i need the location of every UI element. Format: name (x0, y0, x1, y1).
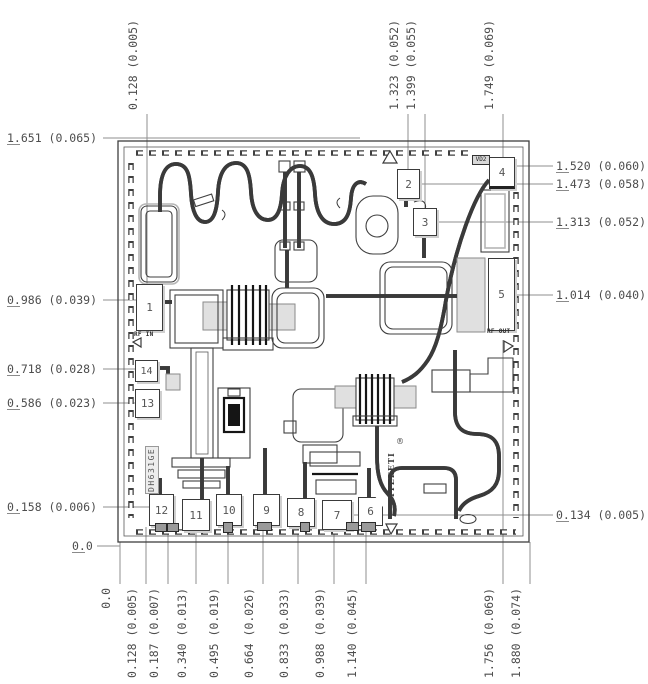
dim-right-1473: 1.473 (0.058) (556, 177, 646, 191)
dim-bot-0833: 0.833 (0.033) (277, 588, 291, 680)
bond-pad-4: 4 (489, 157, 515, 189)
dim-top-0128: 0.128 (0.005) (126, 10, 140, 110)
rf-out-label: RF OUT (487, 328, 510, 335)
circuit-artwork (139, 161, 513, 524)
registered-mark-icon: ® (396, 437, 404, 446)
bond-pad-2: 2 (397, 169, 420, 199)
dim-left-0158: 0.158 (0.006) (7, 500, 97, 514)
dim-top-1323: 1.323 (0.052) (387, 10, 401, 110)
bond-pad-11: 11 (182, 499, 210, 531)
dim-left-0586: 0.586 (0.023) (7, 396, 97, 410)
bond-pad-14: 14 (135, 360, 158, 382)
bias-tag-icon (361, 522, 376, 532)
dim-right-1313: 1.313 (0.052) (556, 215, 646, 229)
bias-tag-icon (346, 522, 359, 531)
bond-pad-3: 3 (413, 208, 437, 236)
triangle-right-icon (504, 341, 513, 352)
dim-right-1520: 1.520 (0.060) (556, 159, 646, 173)
dim-bot-0187: 0.187 (0.007) (147, 588, 161, 680)
bias-tag-icon (155, 523, 167, 532)
triangle-left-icon (133, 338, 141, 347)
dim-bot-1140: 1.140 (0.045) (345, 588, 359, 680)
bond-pad-13: 13 (135, 389, 160, 418)
bias-tag-icon (167, 523, 179, 532)
dim-bot-0664: 0.664 (0.026) (242, 588, 256, 680)
dim-left-0986: 0.986 (0.039) (7, 293, 97, 307)
dim-right-1014: 1.014 (0.040) (556, 288, 646, 302)
dim-bot-0988: 0.988 (0.039) (313, 588, 327, 680)
bond-pad-12: 12 (149, 494, 174, 526)
rf-in-label: RF IN (134, 331, 154, 338)
dim-left-0718: 0.718 (0.028) (7, 362, 97, 376)
mmic-outline-drawing: 1 2 3 4 5 6 7 8 9 10 11 12 13 14 RF IN R… (0, 0, 648, 684)
bias-tag-icon (257, 522, 272, 531)
dim-bot-1756: 1.756 (0.069) (482, 588, 496, 680)
dim-top-1749: 1.749 (0.069) (482, 10, 496, 110)
bond-pad-1: 1 (136, 284, 163, 331)
bias-tag-icon (300, 522, 310, 532)
dim-left-1651: 1.651 (0.065) (7, 131, 97, 145)
vd2-tag: VD2 (472, 155, 490, 165)
die-part-number: DH631GE (145, 446, 159, 494)
dim-left-zero: 0.0 (72, 539, 93, 553)
bias-tag-icon (223, 522, 233, 533)
die-artwork-layer (0, 0, 648, 684)
dim-bot-0128: 0.128 (0.005) (125, 588, 139, 680)
dim-bot-1880: 1.880 (0.074) (509, 588, 523, 680)
die-logo-text: ITEEETI (386, 452, 398, 497)
dim-bot-0495: 0.495 (0.019) (207, 588, 221, 680)
bond-pad-5: 5 (488, 258, 515, 331)
dim-bot-0340: 0.340 (0.013) (175, 588, 189, 680)
dim-bot-zero: 0.0 (99, 588, 113, 680)
dim-top-1399: 1.399 (0.055) (404, 10, 418, 110)
dim-right-0134: 0.134 (0.005) (556, 508, 646, 522)
